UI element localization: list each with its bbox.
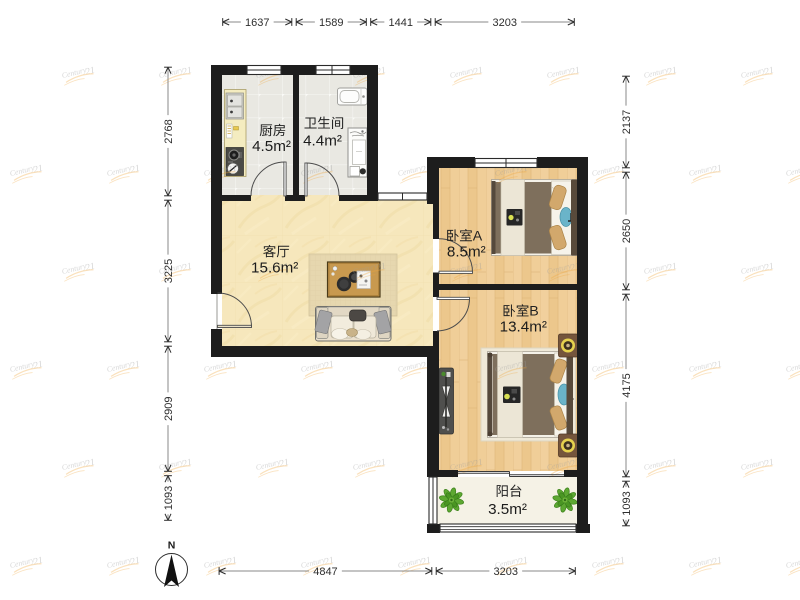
svg-text:3203: 3203 <box>494 566 518 578</box>
svg-text:2650: 2650 <box>621 219 633 243</box>
svg-text:4175: 4175 <box>621 373 633 397</box>
svg-text:2768: 2768 <box>163 119 175 143</box>
svg-text:1441: 1441 <box>389 17 413 29</box>
svg-text:1637: 1637 <box>245 17 269 29</box>
svg-text:3.5m²: 3.5m² <box>488 501 527 518</box>
svg-text:N: N <box>168 540 176 552</box>
svg-text:A: A <box>473 229 483 245</box>
svg-text:3203: 3203 <box>493 17 517 29</box>
svg-text:4847: 4847 <box>313 566 337 578</box>
svg-text:3225: 3225 <box>163 259 175 283</box>
svg-text:2137: 2137 <box>621 110 633 134</box>
svg-text:15.6m²: 15.6m² <box>251 259 298 276</box>
svg-text:1093: 1093 <box>621 491 633 515</box>
svg-text:1093: 1093 <box>163 486 175 510</box>
svg-text:2909: 2909 <box>163 397 175 421</box>
svg-text:4.4m²: 4.4m² <box>303 133 342 150</box>
svg-text:4.5m²: 4.5m² <box>252 138 291 155</box>
svg-text:1589: 1589 <box>319 17 343 29</box>
svg-text:8.5m²: 8.5m² <box>447 244 486 261</box>
svg-text:B: B <box>529 304 538 320</box>
svg-text:13.4m²: 13.4m² <box>500 318 547 335</box>
